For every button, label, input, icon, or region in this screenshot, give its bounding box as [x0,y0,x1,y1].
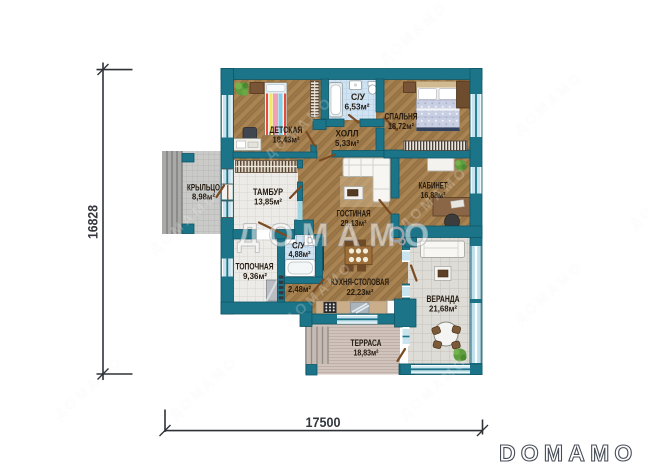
svg-text:ТОПОЧНАЯ: ТОПОЧНАЯ [236,262,274,272]
svg-text:17500: 17500 [306,414,341,430]
svg-text:С/У: С/У [351,92,365,102]
svg-text:ВЕРАНДА: ВЕРАНДА [427,294,460,304]
svg-text:ТАМБУР: ТАМБУР [253,187,283,197]
svg-text:22,23м²: 22,23м² [347,287,374,297]
svg-text:18,72м²: 18,72м² [388,121,414,131]
svg-text:13,85м²: 13,85м² [254,197,282,207]
svg-text:СПАЛЬНЯ: СПАЛЬНЯ [385,112,418,122]
svg-text:DOMAMO: DOMAMO [499,440,638,466]
svg-text:16828: 16828 [85,205,101,239]
svg-text:6,53м²: 6,53м² [345,102,370,112]
svg-text:5,33м²: 5,33м² [335,138,359,148]
svg-text:ХОЛЛ: ХОЛЛ [336,129,359,139]
svg-text:9,36м²: 9,36м² [243,271,267,281]
svg-text:18,83м²: 18,83м² [354,348,379,358]
svg-text:21,68м²: 21,68м² [429,304,457,314]
svg-text:ТЕРРАСА: ТЕРРАСА [351,338,382,348]
